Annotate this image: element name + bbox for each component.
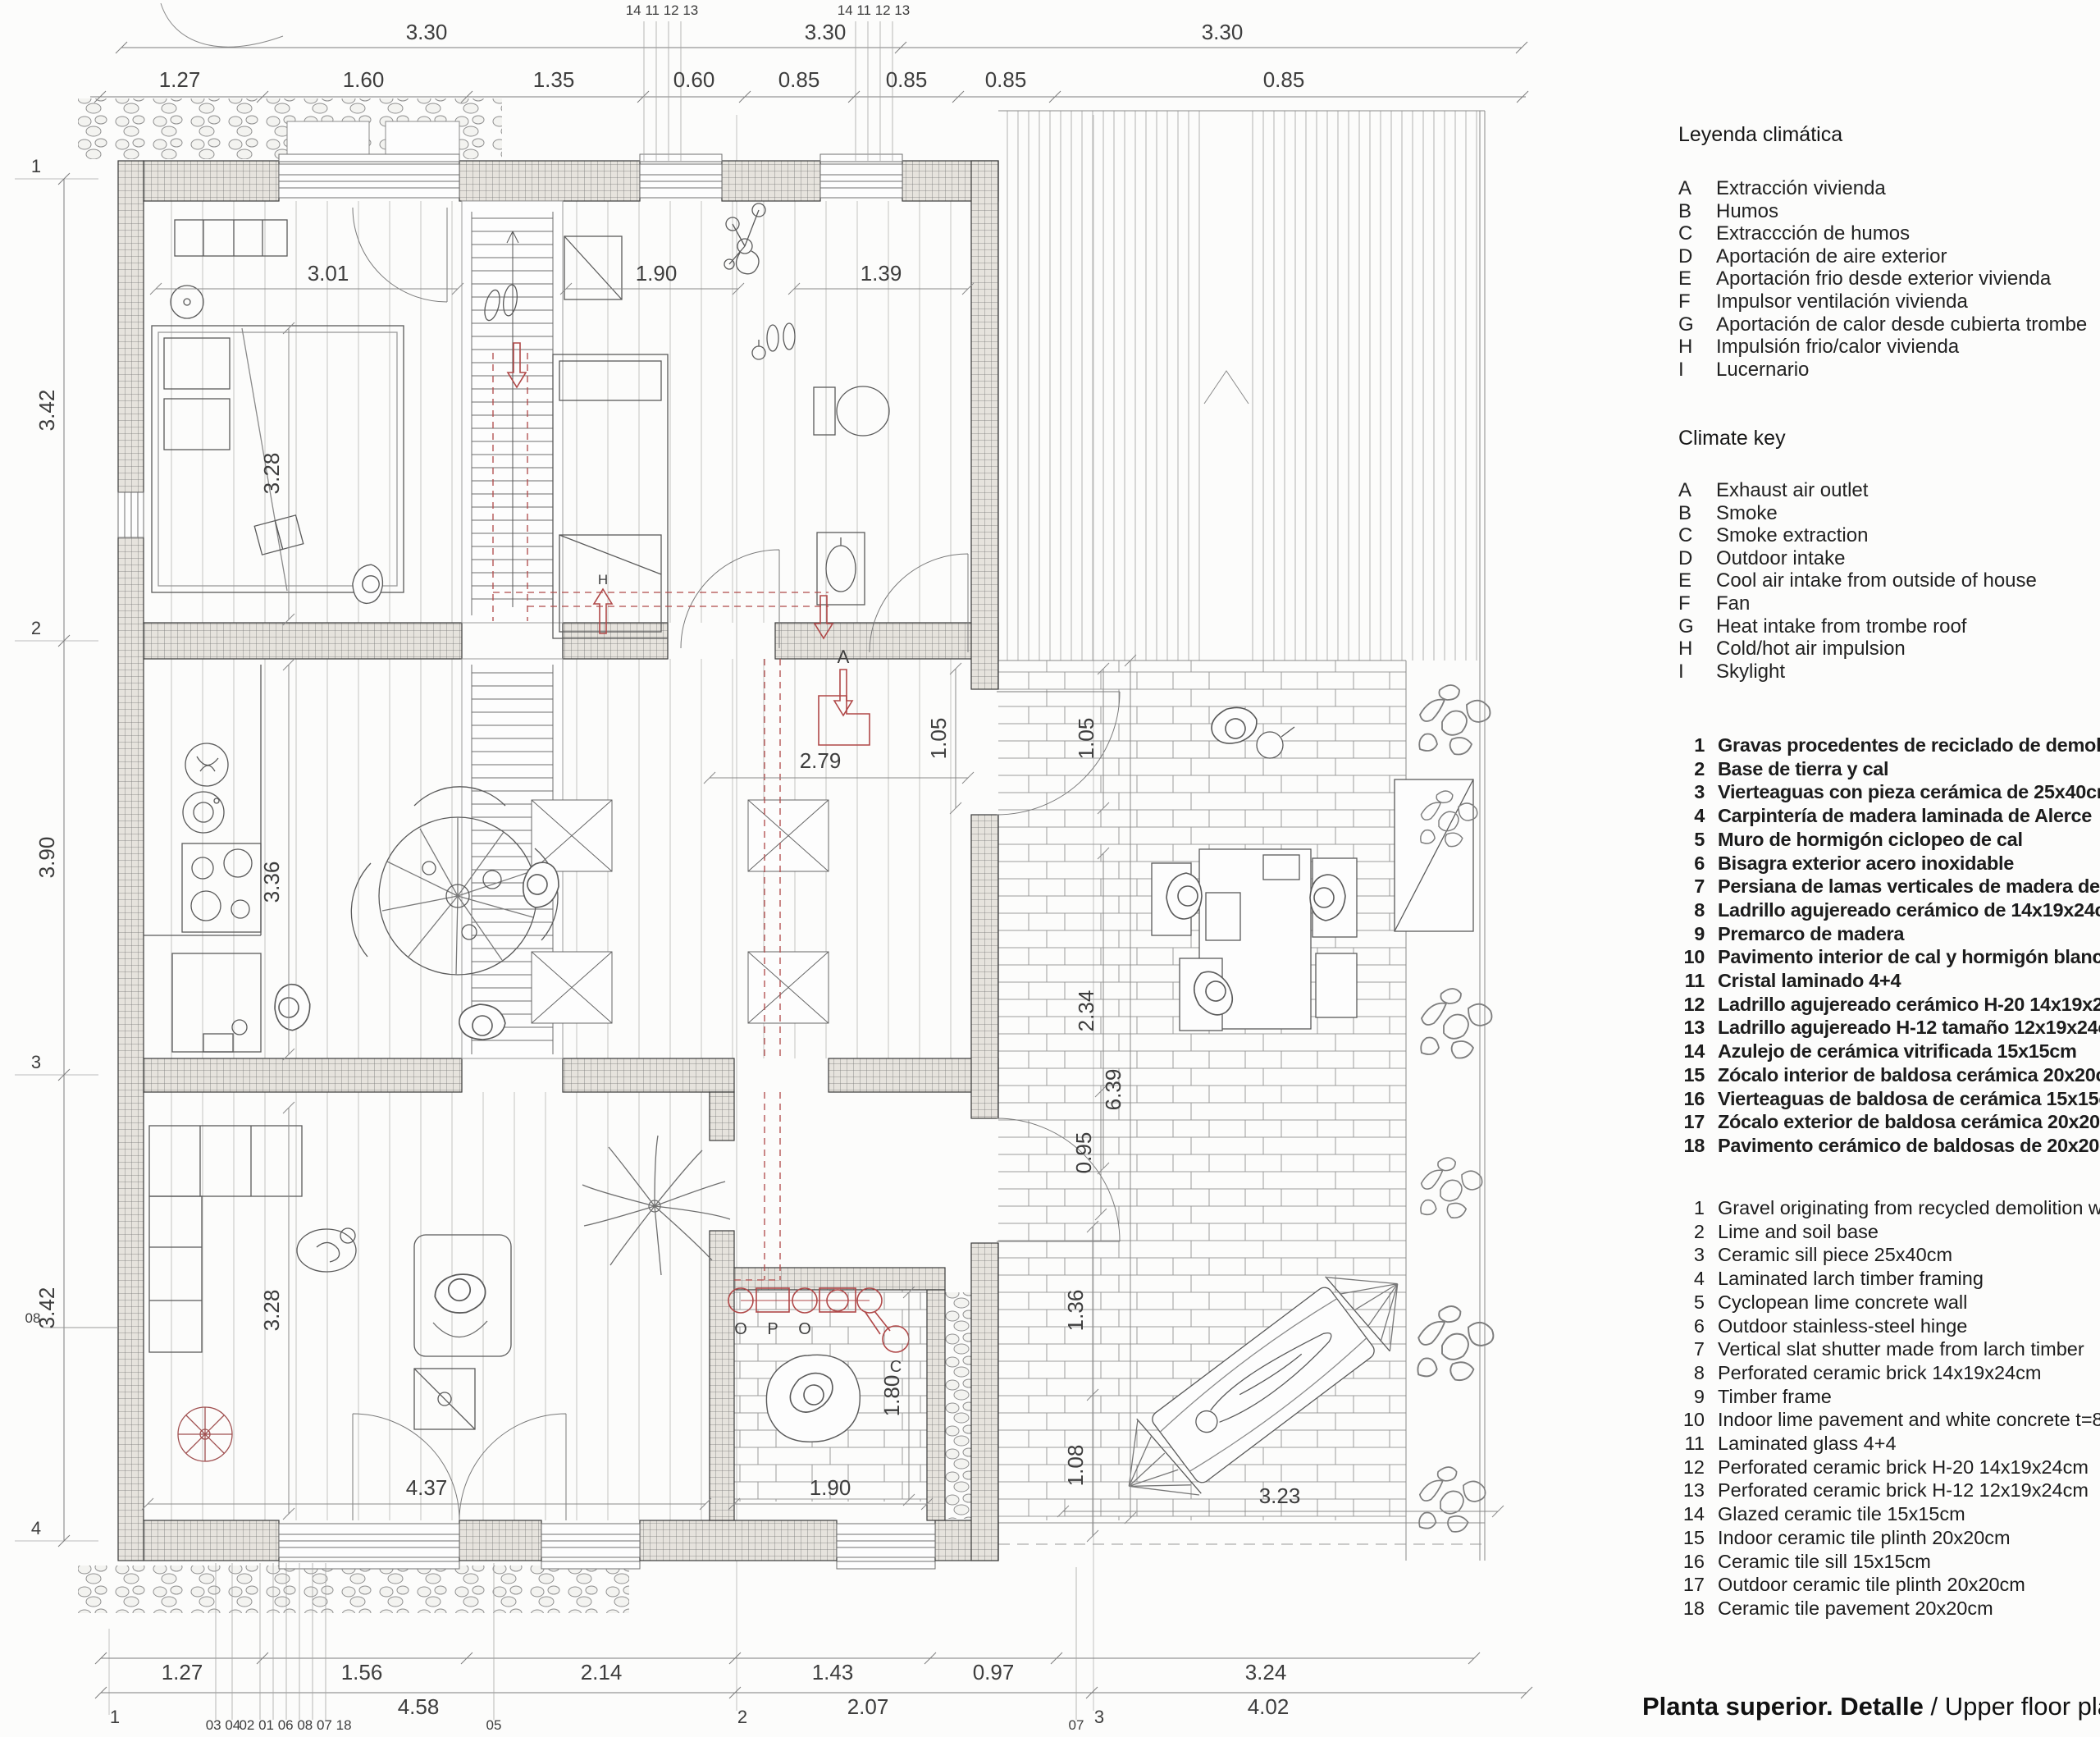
legend-text: Fan xyxy=(1716,592,2100,615)
legend-key: 1 xyxy=(1678,734,1705,757)
legend-key: 11 xyxy=(1678,1432,1705,1456)
legend-key: 12 xyxy=(1678,1456,1705,1479)
legend-row: 6Outdoor stainless-steel hinge xyxy=(1678,1314,2100,1338)
legend-text: Vierteaguas de baldosa de cerámica 15x15… xyxy=(1718,1087,2100,1111)
legend-row: 15Indoor ceramic tile plinth 20x20cm xyxy=(1678,1526,2100,1550)
legend-row: BHumos xyxy=(1678,200,2100,223)
side-stool xyxy=(1316,953,1357,1017)
legend-row: 18Pavimento cerámico de baldosas de 20x2… xyxy=(1678,1134,2100,1158)
legend-key: 7 xyxy=(1678,1337,1705,1361)
legend-row: AExhaust air outlet xyxy=(1678,479,2100,502)
legend-text: Perforated ceramic brick H-20 14x19x24cm xyxy=(1718,1456,2100,1479)
legend-key: 9 xyxy=(1678,1385,1705,1409)
legend-row: 10Indoor lime pavement and white concret… xyxy=(1678,1408,2100,1432)
dim: 1.36 xyxy=(1063,1290,1088,1332)
legend-row: 9Premarco de madera xyxy=(1678,922,2100,946)
legend-key: B xyxy=(1678,502,1716,525)
grid-bubble: 1 xyxy=(110,1707,120,1727)
legend-row: 3Ceramic sill piece 25x40cm xyxy=(1678,1243,2100,1267)
legend-row: 17Zócalo exterior de baldosa cerámica 20… xyxy=(1678,1110,2100,1134)
legend-text: Outdoor stainless-steel hinge xyxy=(1718,1314,2100,1338)
legend-row: 10Pavimento interior de cal y hormigón b… xyxy=(1678,945,2100,969)
legend-text: Ladrillo agujereado H-12 tamaño 12x19x24… xyxy=(1718,1016,2100,1040)
dim: 1.35 xyxy=(533,67,575,92)
legend-row: 2Base de tierra y cal xyxy=(1678,757,2100,781)
legend-key: 3 xyxy=(1678,780,1705,804)
legend-text: Aportación de calor desde cubierta tromb… xyxy=(1716,313,2100,336)
legend-text: Perforated ceramic brick H-12 12x19x24cm xyxy=(1718,1479,2100,1502)
hvac-letter: P xyxy=(767,1320,778,1338)
legend-row: 8Ladrillo agujereado cerámico de 14x19x2… xyxy=(1678,898,2100,922)
legend-es-title-block: Leyenda climática xyxy=(1678,123,2100,147)
legend-text: Aportación frio desde exterior vivienda xyxy=(1716,267,2100,290)
legend-row: 7Vertical slat shutter made from larch t… xyxy=(1678,1337,2100,1361)
legend-key: 6 xyxy=(1678,852,1705,875)
legend-row: 4Carpintería de madera laminada de Alerc… xyxy=(1678,804,2100,828)
legend-text: Gravas procedentes de reciclado de demol… xyxy=(1718,734,2100,757)
dim: 0.60 xyxy=(673,67,715,92)
legend-key: 17 xyxy=(1678,1110,1705,1134)
legend-row: ISkylight xyxy=(1678,661,2100,683)
legend-row: AExtracción vivienda xyxy=(1678,177,2100,200)
dim: 3.30 xyxy=(1202,20,1244,44)
legend-key: H xyxy=(1678,638,1716,661)
dim: 1.90 xyxy=(636,261,678,286)
window-left xyxy=(118,492,144,537)
window-bottom-2 xyxy=(541,1524,640,1557)
dim: 3.28 xyxy=(259,453,284,495)
dim: 3.30 xyxy=(406,20,448,44)
legend-key: 16 xyxy=(1678,1087,1705,1111)
legend-row: CExtraccción de humos xyxy=(1678,222,2100,245)
callout: 05 xyxy=(486,1717,502,1733)
legend-row: 2Lime and soil base xyxy=(1678,1220,2100,1244)
legend-row: 14Glazed ceramic tile 15x15cm xyxy=(1678,1502,2100,1526)
legend-row: BSmoke xyxy=(1678,502,2100,525)
dim: 3.23 xyxy=(1259,1483,1301,1508)
legend-row: HImpulsión frio/calor vivienda xyxy=(1678,336,2100,359)
legend-text: Outdoor ceramic tile plinth 20x20cm xyxy=(1718,1573,2100,1597)
grid-bubble: 2 xyxy=(737,1707,747,1727)
paper xyxy=(1206,893,1240,940)
legend-row: 11Laminated glass 4+4 xyxy=(1678,1432,2100,1456)
dim: 3.24 xyxy=(1245,1660,1287,1684)
legend-key: A xyxy=(1678,479,1716,502)
window-top-3 xyxy=(820,164,902,198)
legend-row: HCold/hot air impulsion xyxy=(1678,638,2100,661)
legend-text: Glazed ceramic tile 15x15cm xyxy=(1718,1502,2100,1526)
legend-row: 12Ladrillo agujereado cerámico H-20 14x1… xyxy=(1678,993,2100,1017)
legend-key: 17 xyxy=(1678,1573,1705,1597)
dim: 1.08 xyxy=(1063,1445,1088,1487)
legend-key: 3 xyxy=(1678,1243,1705,1267)
window-bottom-3 xyxy=(837,1524,935,1557)
sheet-title-en: Upper floor plan. Det xyxy=(1945,1692,2100,1721)
dim: 2.14 xyxy=(581,1660,623,1684)
dim: 1.39 xyxy=(861,261,902,286)
dim: 1.90 xyxy=(810,1475,851,1500)
dim: 1.56 xyxy=(341,1660,383,1684)
legend-text: Extraccción de humos xyxy=(1716,222,2100,245)
legend-row: 8Perforated ceramic brick 14x19x24cm xyxy=(1678,1361,2100,1385)
legend-text: Persiana de lamas verticales de madera d… xyxy=(1718,875,2100,898)
legend-key: 7 xyxy=(1678,875,1705,898)
legend-row: ILucernario xyxy=(1678,359,2100,382)
legend-key: E xyxy=(1678,267,1716,290)
callout: 07 xyxy=(1069,1717,1084,1733)
dim: 0.97 xyxy=(973,1660,1015,1684)
callout: 02 01 06 08 07 18 xyxy=(239,1717,351,1733)
floor-plan-svg: 3.30 3.30 3.30 1.27 1.60 1.35 0.60 0.85 … xyxy=(0,0,1649,1733)
legend-key: 8 xyxy=(1678,1361,1705,1385)
paper xyxy=(1263,855,1299,880)
legend-key: G xyxy=(1678,615,1716,638)
window-top-2 xyxy=(640,164,722,198)
legend-row: 16Ceramic tile sill 15x15cm xyxy=(1678,1550,2100,1574)
legend-key: 5 xyxy=(1678,1291,1705,1314)
dim: 3.42 xyxy=(34,390,59,432)
legend-row: 17Outdoor ceramic tile plinth 20x20cm xyxy=(1678,1573,2100,1597)
legend-row: 5Muro de hormigón ciclopeo de cal xyxy=(1678,828,2100,852)
hvac-letter: O xyxy=(734,1320,747,1338)
legend-text: Cold/hot air impulsion xyxy=(1716,638,2100,661)
legend-row: CSmoke extraction xyxy=(1678,524,2100,547)
legend-key: 14 xyxy=(1678,1040,1705,1063)
legend-row: GHeat intake from trombe roof xyxy=(1678,615,2100,638)
legend-key: 8 xyxy=(1678,898,1705,922)
legend-row: 11Cristal laminado 4+4 xyxy=(1678,969,2100,993)
legend-row: 6Bisagra exterior acero inoxidable xyxy=(1678,852,2100,875)
legend-text: Muro de hormigón ciclopeo de cal xyxy=(1718,828,2100,852)
dim: 1.80 xyxy=(879,1375,904,1417)
legend-text: Ladrillo agujereado cerámico de 14x19x24… xyxy=(1718,898,2100,922)
legend-text: Cool air intake from outside of house xyxy=(1716,569,2100,592)
legend-row: 4Laminated larch timber framing xyxy=(1678,1267,2100,1291)
legend-text: Cyclopean lime concrete wall xyxy=(1718,1291,2100,1314)
mech-room xyxy=(766,1355,860,1442)
callout: 08 xyxy=(25,1310,41,1326)
dim: 0.85 xyxy=(778,67,820,92)
callout: 14 11 12 13 xyxy=(838,2,911,18)
legend-text: Pavimento cerámico de baldosas de 20x20c… xyxy=(1718,1134,2100,1158)
hvac-letter: O xyxy=(798,1320,811,1338)
legend-row: ECool air intake from outside of house xyxy=(1678,569,2100,592)
legend-text: Smoke xyxy=(1716,502,2100,525)
legend-es-list: AExtracción viviendaBHumosCExtraccción d… xyxy=(1678,177,2100,381)
legend-text: Laminated larch timber framing xyxy=(1718,1267,2100,1291)
legend-key: 15 xyxy=(1678,1063,1705,1087)
dim: 2.79 xyxy=(800,748,842,773)
legend-text: Gravel originating from recycled demolit… xyxy=(1718,1196,2100,1220)
legend-text: Bisagra exterior acero inoxidable xyxy=(1718,852,2100,875)
floor-plan-drawing: 3.30 3.30 3.30 1.27 1.60 1.35 0.60 0.85 … xyxy=(0,0,1649,1737)
legend-key: 15 xyxy=(1678,1526,1705,1550)
legend-key: H xyxy=(1678,336,1716,359)
legend-text: Cristal laminado 4+4 xyxy=(1718,969,2100,993)
grid-bubble: 3 xyxy=(1094,1707,1104,1727)
sheet-title: Planta superior. Detalle / Upper floor p… xyxy=(1642,1692,2100,1721)
notes-es-list: 1Gravas procedentes de reciclado de demo… xyxy=(1678,734,2100,1158)
window-bottom-1 xyxy=(279,1524,459,1557)
dim: 2.07 xyxy=(847,1694,889,1719)
legend-key: C xyxy=(1678,222,1716,245)
dim: 1.05 xyxy=(1074,718,1098,760)
legend-text: Extracción vivienda xyxy=(1716,177,2100,200)
legend-text: Laminated glass 4+4 xyxy=(1718,1432,2100,1456)
legend-text: Lime and soil base xyxy=(1718,1220,2100,1244)
legend-key: 10 xyxy=(1678,945,1705,969)
legend-row: 3Vierteaguas con pieza cerámica de 25x40… xyxy=(1678,780,2100,804)
legend-key: C xyxy=(1678,524,1716,547)
legend-row: FImpulsor ventilación vivienda xyxy=(1678,290,2100,313)
legend-key: 13 xyxy=(1678,1016,1705,1040)
legend-key: 13 xyxy=(1678,1479,1705,1502)
legend-text: Zócalo interior de baldosa cerámica 20x2… xyxy=(1718,1063,2100,1087)
sheet-title-sep: / xyxy=(1924,1692,1945,1721)
legend-text: Ceramic sill piece 25x40cm xyxy=(1718,1243,2100,1267)
legend-row: 14Azulejo de cerámica vitrificada 15x15c… xyxy=(1678,1040,2100,1063)
legend-key: E xyxy=(1678,569,1716,592)
legend-row: 1Gravas procedentes de reciclado de demo… xyxy=(1678,734,2100,757)
dim: 3.01 xyxy=(308,261,349,286)
legend-key: F xyxy=(1678,592,1716,615)
legend-text: Exhaust air outlet xyxy=(1716,479,2100,502)
callout: 03 04 xyxy=(206,1717,241,1733)
legend-row: 5Cyclopean lime concrete wall xyxy=(1678,1291,2100,1314)
legend-key: 16 xyxy=(1678,1550,1705,1574)
grid-bubble: 3 xyxy=(31,1052,41,1072)
legend-row: 13Ladrillo agujereado H-12 tamaño 12x19x… xyxy=(1678,1016,2100,1040)
legend-en-title: Climate key xyxy=(1678,427,2100,450)
legend-row: EAportación frio desde exterior vivienda xyxy=(1678,267,2100,290)
legend-key: 2 xyxy=(1678,757,1705,781)
legend-key: 14 xyxy=(1678,1502,1705,1526)
legend-key: G xyxy=(1678,313,1716,336)
dim: 3.30 xyxy=(805,20,847,44)
legend-key: A xyxy=(1678,177,1716,200)
legend-row: 18Ceramic tile pavement 20x20cm xyxy=(1678,1597,2100,1620)
legend-key: 5 xyxy=(1678,828,1705,852)
dim: 4.02 xyxy=(1248,1694,1290,1719)
legend-es-title: Leyenda climática xyxy=(1678,123,2100,147)
legend-text: Indoor lime pavement and white concrete … xyxy=(1718,1408,2100,1432)
legend-text: Premarco de madera xyxy=(1718,922,2100,946)
legend-key: 4 xyxy=(1678,1267,1705,1291)
legend-key: 2 xyxy=(1678,1220,1705,1244)
legend-key: 18 xyxy=(1678,1134,1705,1158)
legend-text: Base de tierra y cal xyxy=(1718,757,2100,781)
legend-key: I xyxy=(1678,661,1716,683)
legend-text: Vertical slat shutter made from larch ti… xyxy=(1718,1337,2100,1361)
watering-can xyxy=(1257,732,1283,758)
dim: 2.34 xyxy=(1074,990,1098,1032)
hvac-letter: H xyxy=(598,572,608,587)
legend-text: Outdoor intake xyxy=(1716,547,2100,570)
legend-key: B xyxy=(1678,200,1716,223)
legend-key: 4 xyxy=(1678,804,1705,828)
legend-text: Impulsión frio/calor vivienda xyxy=(1716,336,2100,359)
legend-row: DOutdoor intake xyxy=(1678,547,2100,570)
grid-bubble: 1 xyxy=(31,156,41,176)
notes-en-list: 1Gravel originating from recycled demoli… xyxy=(1678,1196,2100,1620)
dim: 0.95 xyxy=(1071,1132,1096,1174)
legend-text: Heat intake from trombe roof xyxy=(1716,615,2100,638)
legend-key: 11 xyxy=(1678,969,1705,993)
legend-key: I xyxy=(1678,359,1716,382)
legend-text: Ceramic tile pavement 20x20cm xyxy=(1718,1597,2100,1620)
legend-text: Azulejo de cerámica vitrificada 15x15cm xyxy=(1718,1040,2100,1063)
legend-text: Carpintería de madera laminada de Alerce xyxy=(1718,804,2100,828)
legend-key: 9 xyxy=(1678,922,1705,946)
legend-key: F xyxy=(1678,290,1716,313)
legend-text: Perforated ceramic brick 14x19x24cm xyxy=(1718,1361,2100,1385)
grid-bubble: 2 xyxy=(31,618,41,638)
legend-key: 12 xyxy=(1678,993,1705,1017)
legend-text: Impulsor ventilación vivienda xyxy=(1716,290,2100,313)
legend-key: 10 xyxy=(1678,1408,1705,1432)
legend-row: DAportación de aire exterior xyxy=(1678,245,2100,268)
legend-text: Lucernario xyxy=(1716,359,2100,382)
legend-row: 1Gravel originating from recycled demoli… xyxy=(1678,1196,2100,1220)
legend-text: Indoor ceramic tile plinth 20x20cm xyxy=(1718,1526,2100,1550)
dim: 0.85 xyxy=(1263,67,1305,92)
dim: 0.85 xyxy=(985,67,1027,92)
grid-bubble: 4 xyxy=(31,1518,41,1538)
dim: 1.05 xyxy=(926,718,951,760)
wheel-table xyxy=(178,1407,232,1461)
legend-row: FFan xyxy=(1678,592,2100,615)
dim: 4.58 xyxy=(398,1694,440,1719)
legend-text: Zócalo exterior de baldosa cerámica 20x2… xyxy=(1718,1110,2100,1134)
callout: 14 11 12 13 xyxy=(626,2,699,18)
dim: 1.43 xyxy=(812,1660,854,1684)
legend-text: Smoke extraction xyxy=(1716,524,2100,547)
legend-row: 15Zócalo interior de baldosa cerámica 20… xyxy=(1678,1063,2100,1087)
legend-key: D xyxy=(1678,245,1716,268)
dim: 1.27 xyxy=(162,1660,203,1684)
legend-row: 12Perforated ceramic brick H-20 14x19x24… xyxy=(1678,1456,2100,1479)
legend-key: 1 xyxy=(1678,1196,1705,1220)
window-top-1 xyxy=(279,164,459,198)
dim: 1.27 xyxy=(159,67,201,92)
dim: 3.36 xyxy=(259,862,284,903)
legend-row: 16Vierteaguas de baldosa de cerámica 15x… xyxy=(1678,1087,2100,1111)
legend-key: 18 xyxy=(1678,1597,1705,1620)
legend-text: Skylight xyxy=(1716,661,2100,683)
legend-text: Ceramic tile sill 15x15cm xyxy=(1718,1550,2100,1574)
sheet-title-es: Planta superior. Detalle xyxy=(1642,1692,1924,1721)
hvac-letter: A xyxy=(838,647,850,667)
legend-en-title-block: Climate key xyxy=(1678,427,2100,450)
legend-row: 13Perforated ceramic brick H-12 12x19x24… xyxy=(1678,1479,2100,1502)
legend-text: Pavimento interior de cal y hormigón bla… xyxy=(1718,945,2100,969)
legend-row: GAportación de calor desde cubierta trom… xyxy=(1678,313,2100,336)
hvac-letter: C xyxy=(890,1358,902,1376)
legend-row: 9Timber frame xyxy=(1678,1385,2100,1409)
legend-key: 6 xyxy=(1678,1314,1705,1338)
dim: 6.39 xyxy=(1101,1069,1125,1111)
legend-en-list: AExhaust air outletBSmokeCSmoke extracti… xyxy=(1678,479,2100,683)
legend-text: Vierteaguas con pieza cerámica de 25x40c… xyxy=(1718,780,2100,804)
legend-text: Ladrillo agujereado cerámico H-20 14x19x… xyxy=(1718,993,2100,1017)
legend-row: 7Persiana de lamas verticales de madera … xyxy=(1678,875,2100,898)
legend-text: Timber frame xyxy=(1718,1385,2100,1409)
dim: 4.37 xyxy=(406,1475,448,1500)
legend-key: D xyxy=(1678,547,1716,570)
dim: 3.28 xyxy=(259,1290,284,1332)
dim: 0.85 xyxy=(886,67,928,92)
dim: 1.60 xyxy=(343,67,385,92)
dim: 3.90 xyxy=(34,837,59,879)
legend-text: Humos xyxy=(1716,200,2100,223)
legend-text: Aportación de aire exterior xyxy=(1716,245,2100,268)
